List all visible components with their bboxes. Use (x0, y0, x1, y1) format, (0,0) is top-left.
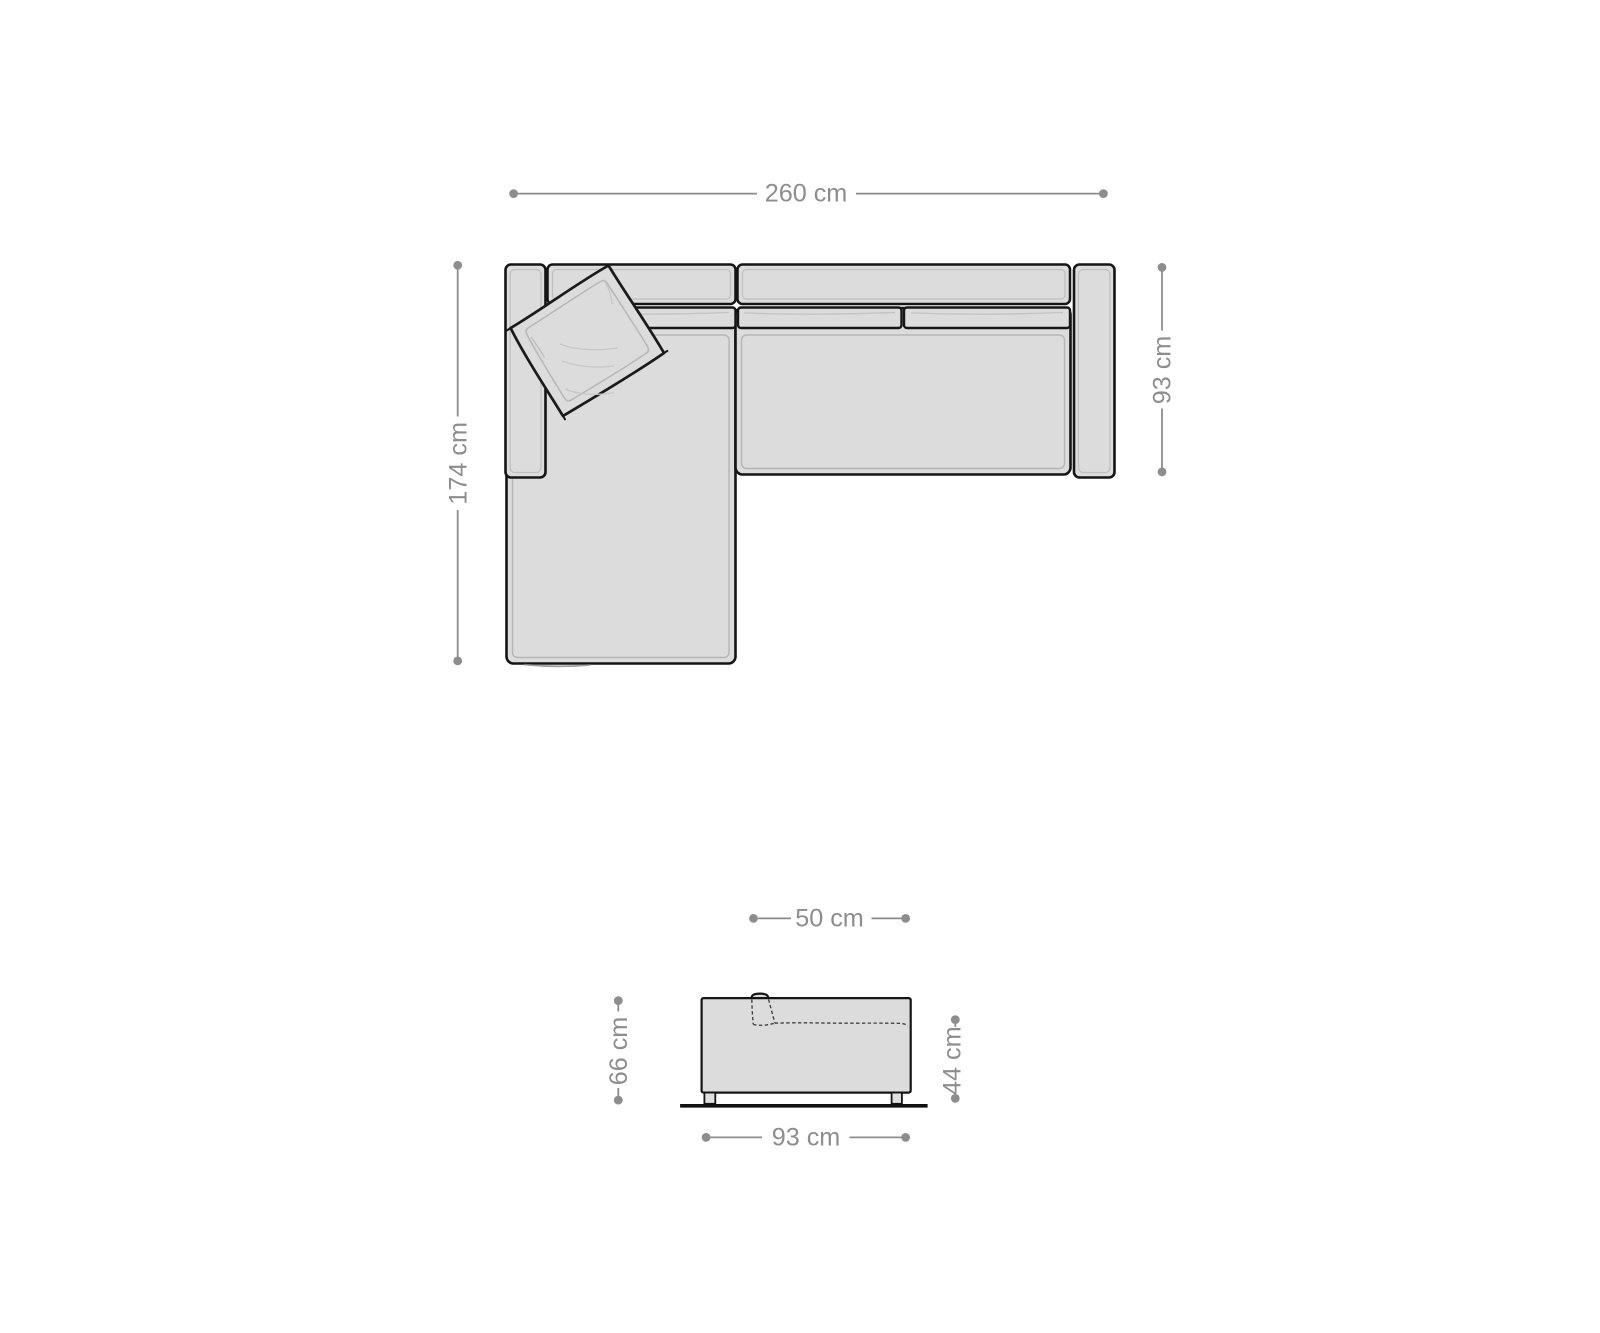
svg-text:66 cm: 66 cm (605, 1017, 633, 1086)
svg-text:50 cm: 50 cm (795, 904, 864, 932)
svg-text:93 cm: 93 cm (772, 1123, 841, 1151)
svg-text:93 cm: 93 cm (1149, 336, 1177, 405)
svg-text:44 cm: 44 cm (939, 1026, 967, 1095)
svg-text:174 cm: 174 cm (445, 422, 473, 505)
svg-text:260 cm: 260 cm (765, 180, 848, 208)
